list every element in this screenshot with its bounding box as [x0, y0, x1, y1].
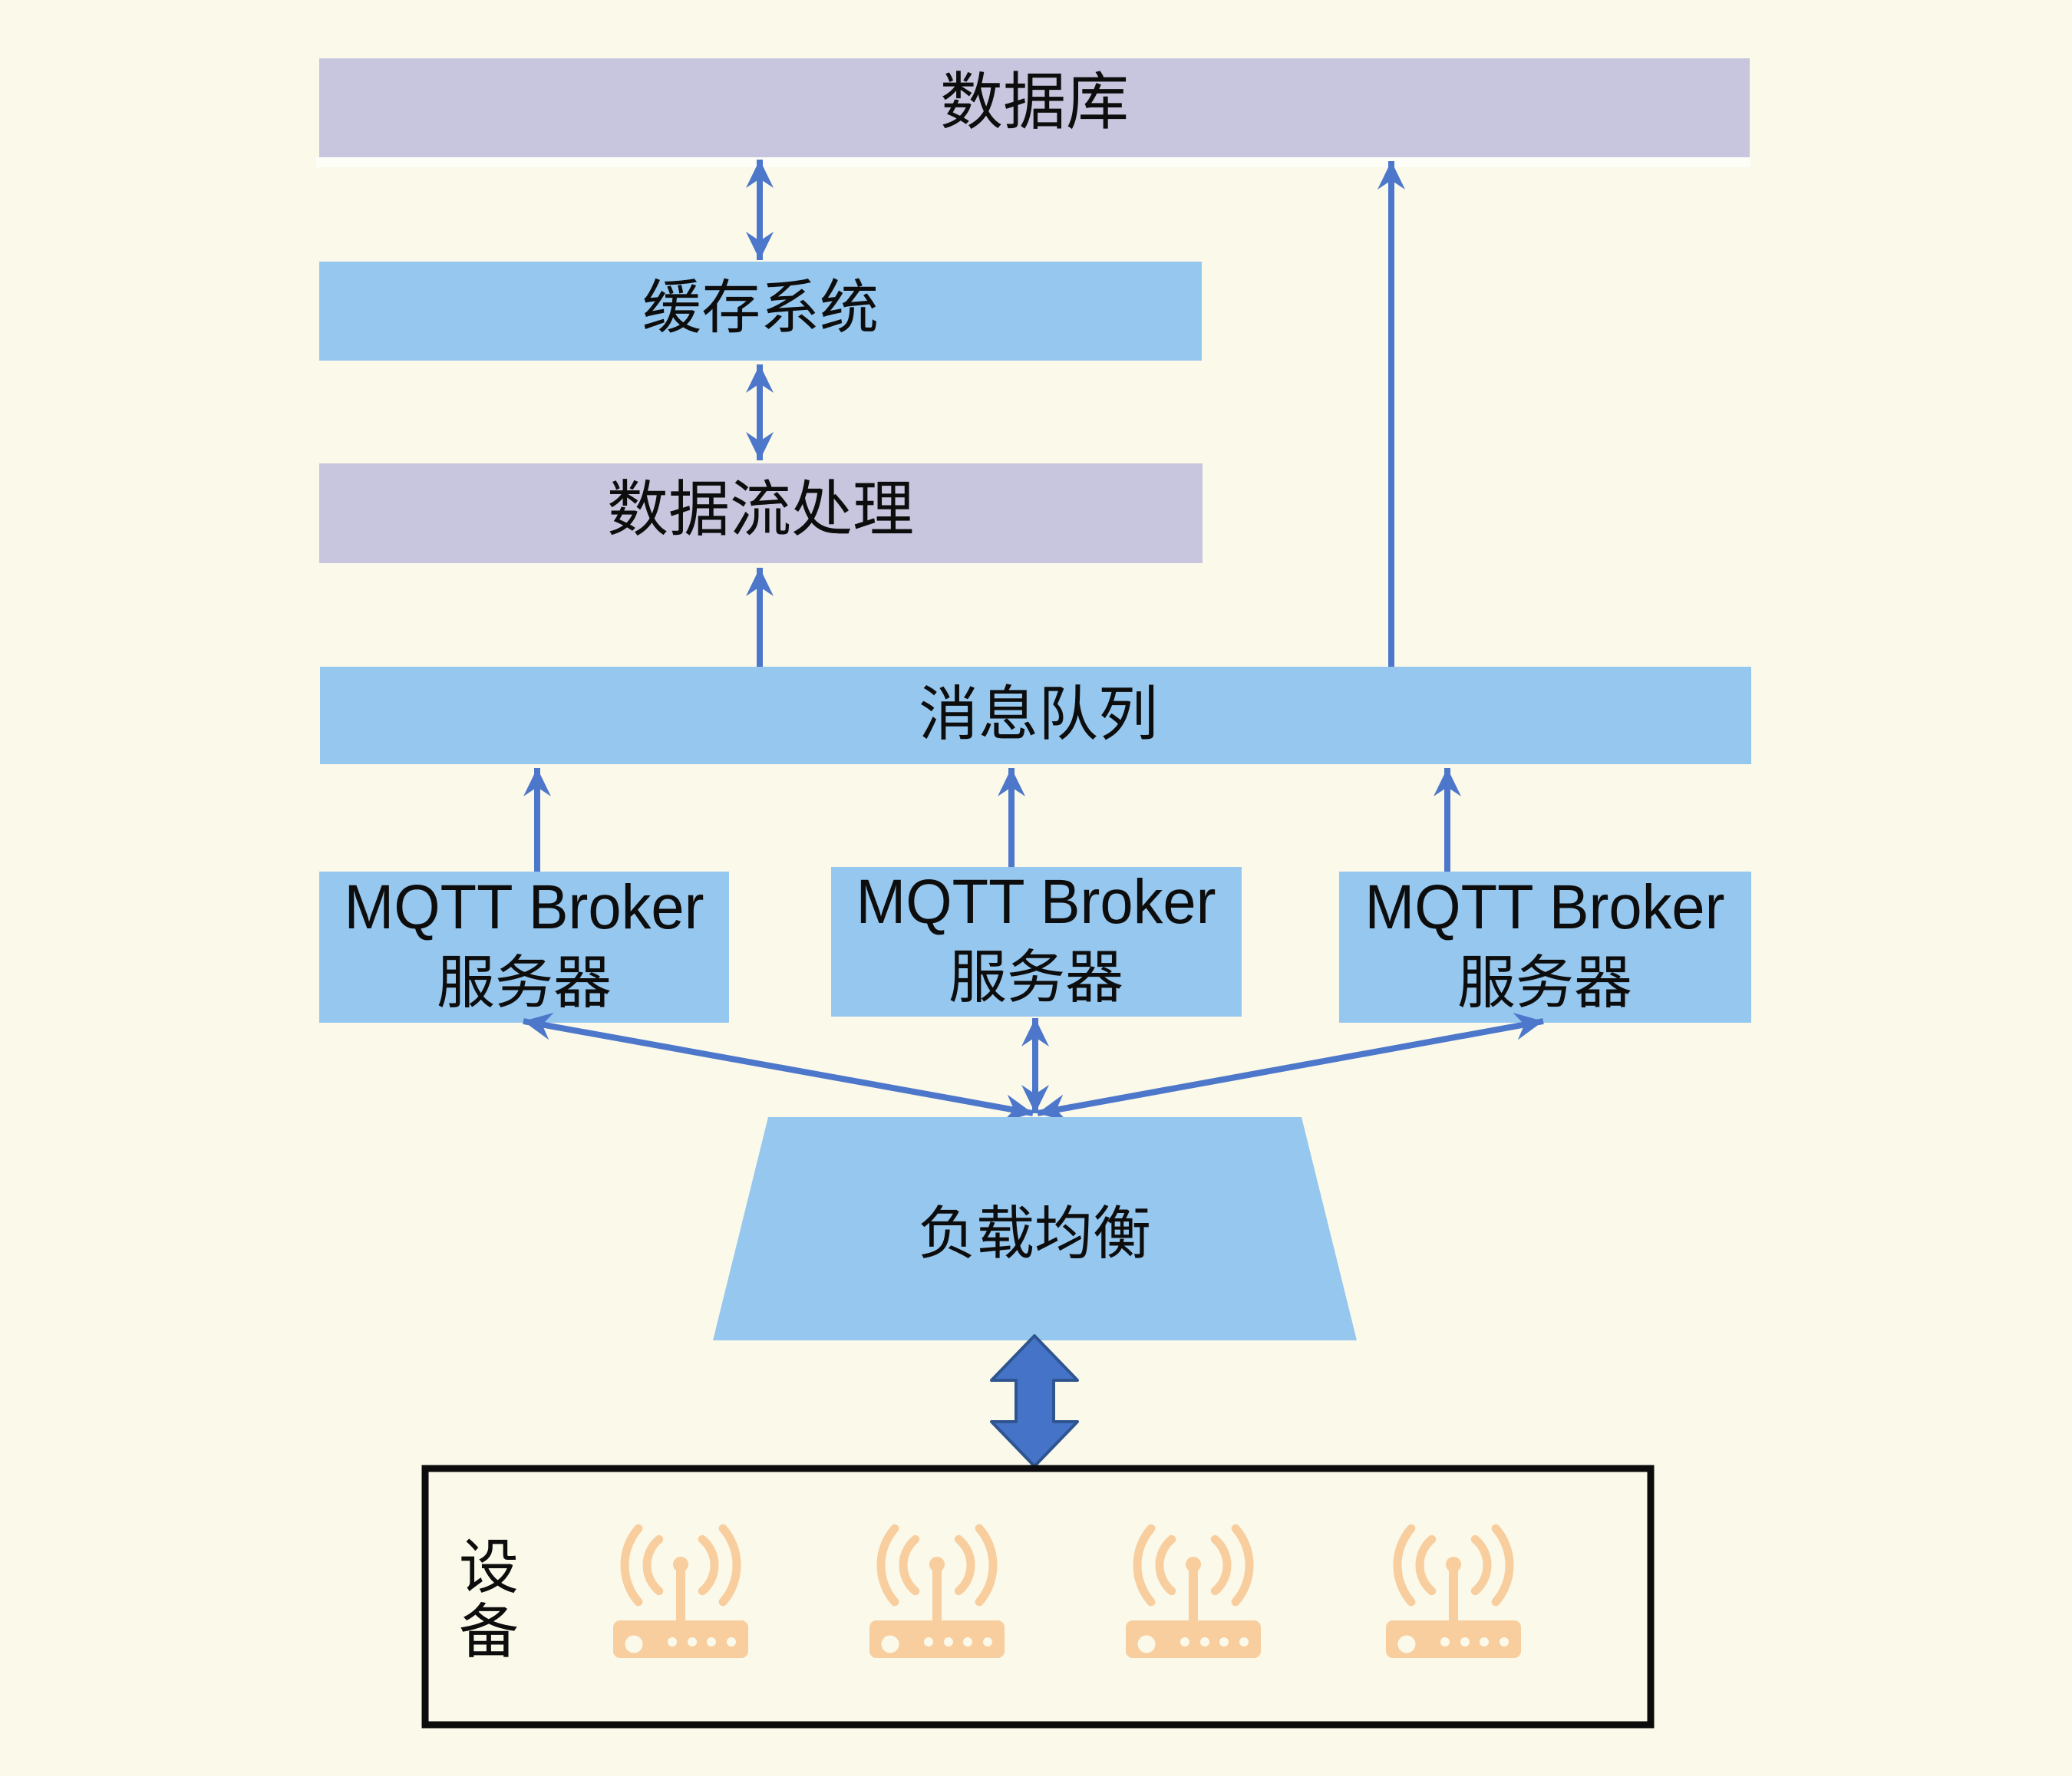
- svg-text:MQTT Broker: MQTT Broker: [345, 872, 704, 942]
- svg-text:MQTT Broker: MQTT Broker: [1365, 872, 1725, 942]
- svg-text:MQTT Broker: MQTT Broker: [856, 867, 1216, 937]
